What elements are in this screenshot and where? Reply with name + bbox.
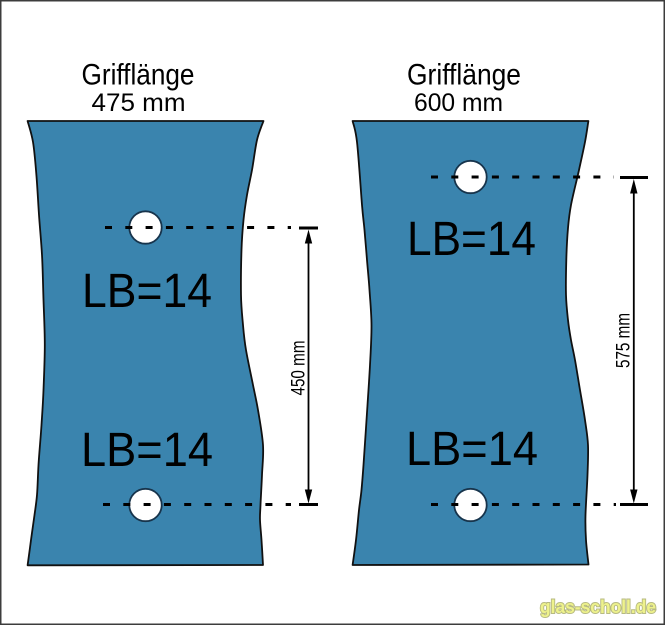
svg-text:575 mm: 575 mm — [614, 313, 635, 368]
svg-text:600 mm: 600 mm — [414, 89, 503, 117]
svg-text:Grifflänge: Grifflänge — [407, 59, 521, 92]
svg-text:LB=14: LB=14 — [407, 212, 536, 266]
svg-text:450 mm: 450 mm — [289, 341, 310, 396]
svg-text:Grifflänge: Grifflänge — [82, 59, 195, 92]
svg-text:LB=14: LB=14 — [81, 423, 213, 477]
svg-text:475 mm: 475 mm — [92, 89, 186, 117]
svg-text:LB=14: LB=14 — [82, 264, 212, 318]
svg-text:glas-scholl.de: glas-scholl.de — [540, 596, 656, 617]
svg-text:LB=14: LB=14 — [406, 422, 538, 476]
